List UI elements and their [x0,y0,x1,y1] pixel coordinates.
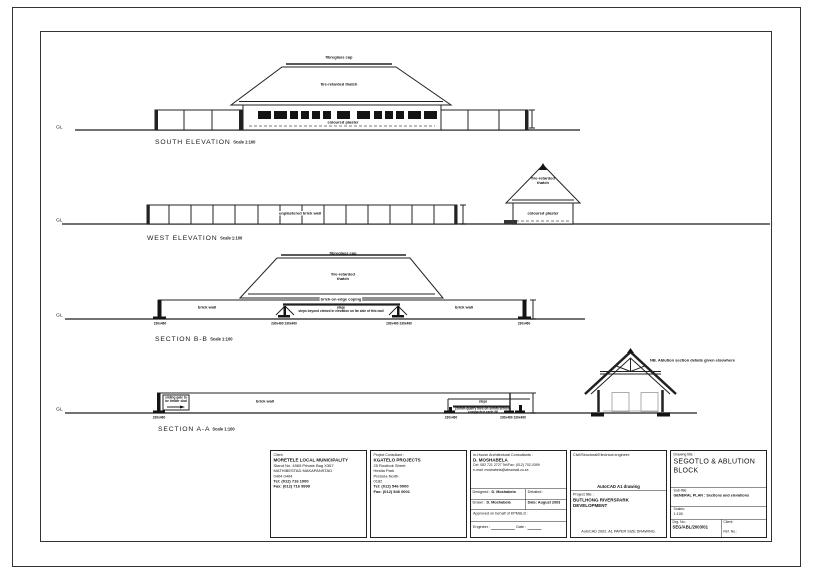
engineer-box-label: Civil/Structural/Electrical engineer: [571,451,666,484]
west-elevation-linework [62,163,770,224]
sectiona-steps-note: (50mm quarry tiles on 30mm screed) compa… [455,407,511,414]
ref-cell: Client: Ref. No.: [722,520,766,539]
client-box-content: Client: MORETELE LOCAL MUNICIPALITY Stan… [271,451,367,538]
architect-box: In-House Architectural Consultants : D. … [470,450,567,538]
subtitle-value: GENERAL PLAN : Sections and elevations [674,493,764,498]
sectionb-thatch-label: fire-retarded thatch [331,272,355,281]
south-plaster-label: coloured plaster [327,120,358,125]
sectiona-steps-label: steps [479,400,487,404]
detailed-label: Detailed : [528,490,544,495]
sectionb-caption-scale: Scale 1:100 [211,337,233,342]
west-gl-label: GL [56,217,63,223]
sectionb-stage-note: steps beyond viewed in elevation on far … [298,310,383,314]
drawn-cell: Drawn : D. Moshabela [471,500,526,510]
drawing-title-content: Drawing title : SEGOTLO & ABLUTION BLOCK… [671,451,766,537]
sectionb-column-right-dim: 230x460 [518,322,530,326]
drawing-title-row: Drawing title : SEGOTLO & ABLUTION BLOCK [671,451,766,488]
designed-value: D. Moshabela [491,490,515,495]
subtitle-row: Sub-title: GENERAL PLAN : Sections and e… [671,488,766,507]
sectionb-column-left-dim: 230x460 [154,322,166,326]
engineer-date-line [527,525,541,530]
sectiona-gate-line2: be timber clad [165,400,187,404]
engineer-signature-line [491,525,515,530]
drawn-value: D. Moshabela [486,500,510,505]
section-bb-caption: SECTION B-B Scale 1:100 [155,335,248,343]
tb-client-label: Client: [723,520,764,525]
date-cell: Date: August 2003 [526,500,566,510]
engineer-label: Engineer : [473,525,490,530]
south-fibreglass-cap-label: fibreglass cap [326,55,353,60]
paper-size-note: AutoCAD 2002. A1 PAPER SIZE DRAWING. [571,529,666,537]
drawing-title-box: Drawing title : SEGOTLO & ABLUTION BLOCK… [670,450,767,538]
sectionb-column-midright-dim: 230x460 230x460 [386,322,412,326]
sectionb-brick-wall-left-label: brick wall [198,305,216,310]
designed-row: Designed : D. Moshabela Detailed : [471,489,566,500]
sectiona-brick-wall-label: brick wall [256,399,274,404]
sectiona-column-right-dim: 230x460 230x460 [500,416,526,420]
sectiona-caption-text: SECTION A-A [158,425,210,433]
sectiona-steps-note2: compacted earth fill [455,411,511,415]
architect-email: e-mail: moshabela@absamail.co.za [473,468,564,473]
section-aa-linework [65,393,697,413]
engineer-date-label: Date : [516,525,526,530]
sectionb-column-midleft-dim: 230x460 230x460 [271,322,297,326]
designed-label: Designed : [473,490,491,495]
engineer-box: Civil/Structural/Electrical engineer: Au… [570,450,667,538]
ref-no-label: Ref. No.: [723,530,764,535]
scales-row: Scales: 1:100 [671,507,766,520]
client-box: Client: MORETELE LOCAL MUNICIPALITY Stan… [270,450,367,538]
south-elevation-caption: SOUTH ELEVATION Scale 1:100 [155,138,270,146]
client-fax: Fax: (012) 716 9999 [274,484,368,489]
sectionb-cap-label: fibreglass cap [330,251,357,256]
drg-no-cell: Drg. No.: SEG/ABL/2003/01 [671,520,722,539]
sectiona-column-mid-dim: 230x460 [445,416,457,420]
project-consultant-content: Project Consultant : KGATELO PROJECTS 25… [371,451,467,538]
sectionb-coping-label: brick-on-edge coping [320,297,363,302]
autocad-note: AutoCAD A1 drawing [571,484,666,491]
south-gl-label: GL [56,124,63,130]
sectiona-gl-label: GL [56,406,63,412]
sectiona-column-left-dim: 230x460 [153,416,165,420]
consultant-fax: Fax: (012) 546 0001 [374,489,468,494]
west-elevation-caption: WEST ELEVATION Scale 1:100 [147,234,257,242]
west-caption-scale: Scale 1:100 [220,236,242,241]
engineer-signoff-row: Engineer : Date : [471,522,566,533]
section-aa-caption: SECTION A-A Scale 1:100 [158,425,250,433]
sectionb-stage-label: stage steps beyond viewed in elevation o… [298,306,383,313]
west-wall-label: unplastered brick wall [278,211,322,216]
south-caption-text: SOUTH ELEVATION [155,138,231,146]
south-thatch-label: fire-retarded thatch [321,82,358,87]
drawn-label: Drawn : [473,500,486,505]
approved-row: Approved on behalf of KPM&LD : [471,510,566,522]
west-plaster-label: coloured plaster [527,211,558,216]
drawing-sheet: fibreglass cap fire-retarded thatch colo… [0,0,814,574]
west-thatch-label: fire-retarded thatch [531,176,555,185]
gable-nb-note: NB. Ablution section details given elsew… [650,358,735,363]
sectionb-brick-wall-right-label: brick wall [455,305,473,310]
drg-no-value: SEG/ABL/2003/01 [673,525,720,531]
detailed-cell: Detailed : [526,489,566,499]
west-caption-text: WEST ELEVATION [147,234,217,242]
drawing-title: SEGOTLO & ABLUTION BLOCK [674,457,764,475]
drawn-row: Drawn : D. Moshabela Date: August 2003 [471,500,566,511]
west-thatch-line2: thatch [531,181,555,186]
sectiona-gate-label: sliding gate to be timber clad [165,396,187,403]
scales-value: 1:100 [674,512,764,517]
engineer-box-content: Civil/Structural/Electrical engineer: Au… [571,451,666,537]
project-consultant-box: Project Consultant : KGATELO PROJECTS 25… [370,450,467,538]
sectionb-thatch-line2: thatch [331,277,355,282]
project-title-line2: DEVELOPMENT [571,503,666,509]
designed-cell: Designed : D. Moshabela [471,489,526,499]
architect-header: In-House Architectural Consultants : D. … [471,451,566,489]
sectionb-caption-text: SECTION B-B [155,335,208,343]
architect-box-content: In-House Architectural Consultants : D. … [471,451,566,537]
number-row: Drg. No.: SEG/ABL/2003/01 Client: Ref. N… [671,520,766,539]
sectionb-gl-label: GL [56,312,63,318]
sectiona-caption-scale: Scale 1:100 [213,427,235,432]
south-caption-scale: Scale 1:100 [233,140,255,145]
